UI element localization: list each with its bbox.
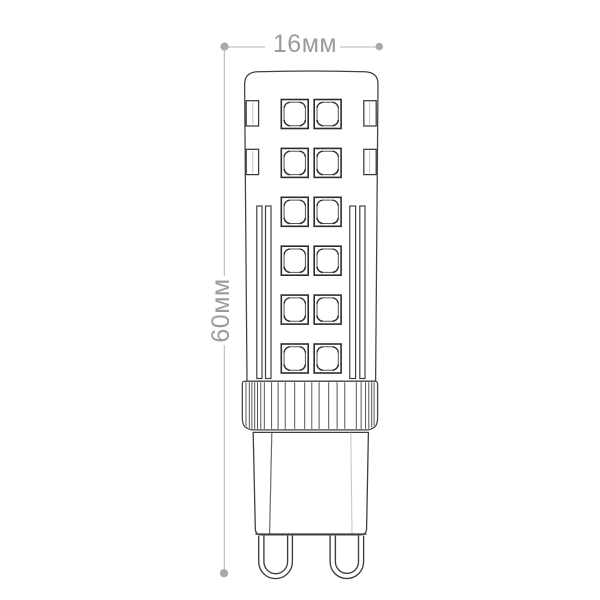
- svg-text:60мм: 60мм: [207, 278, 235, 342]
- svg-text:16мм: 16мм: [273, 30, 337, 58]
